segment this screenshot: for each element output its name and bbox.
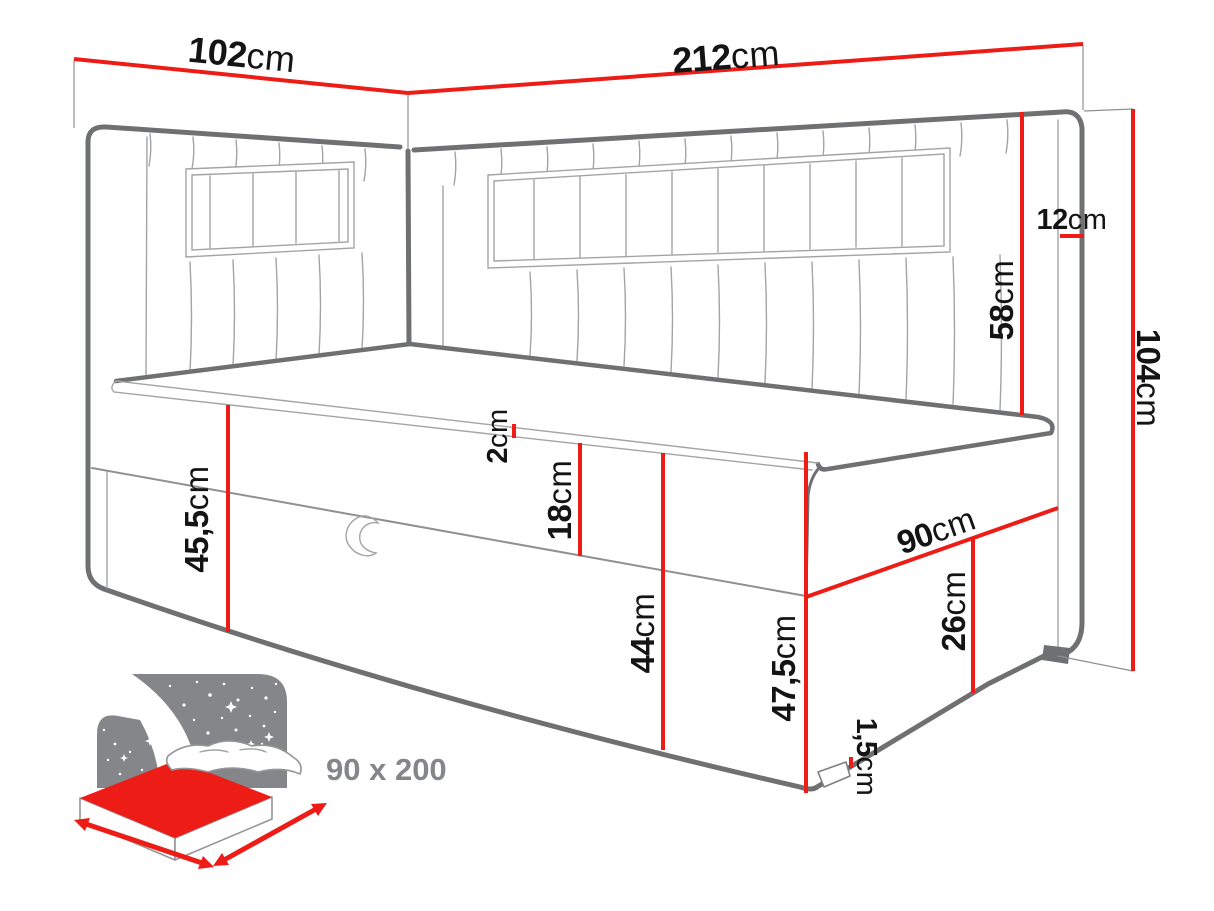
witness-104-top xyxy=(1084,109,1133,111)
dim-label-58cm: 58cm xyxy=(983,260,1020,341)
dim-label-44cm: 44cm xyxy=(624,593,661,674)
diagram-canvas: 102cm 212cm 12cm 58cm 104cm 45,5cm 2cm 1… xyxy=(0,0,1214,911)
dim-label-18cm: 18cm xyxy=(541,460,578,541)
floor-line xyxy=(1058,656,1133,671)
storage-handle xyxy=(346,516,378,556)
dim-label-26cm: 26cm xyxy=(935,571,972,652)
dim-label-2cm: 2cm xyxy=(482,408,514,463)
dim-label-12cm: 12cm xyxy=(1037,204,1108,236)
front-leg xyxy=(818,762,850,787)
dim-label-1-5cm: 1,5cm xyxy=(850,718,882,797)
bed-dimension-diagram: 102cm 212cm 12cm 58cm 104cm 45,5cm 2cm 1… xyxy=(0,0,1214,911)
left-headboard-inset-panel xyxy=(186,162,354,257)
headboard-corner-junction xyxy=(408,151,409,346)
size-icon: 90 x 200 xyxy=(74,674,447,869)
side-panel-foot xyxy=(1042,645,1070,664)
dim-label-212cm: 212cm xyxy=(671,32,781,81)
size-icon-label: 90 x 200 xyxy=(326,752,447,787)
dim-label-104cm: 104cm xyxy=(1131,329,1168,428)
dim-label-47-5cm: 47,5cm xyxy=(765,614,802,721)
dim-label-45-5cm: 45,5cm xyxy=(178,465,215,572)
back-headboard-inset-panel xyxy=(488,148,950,268)
